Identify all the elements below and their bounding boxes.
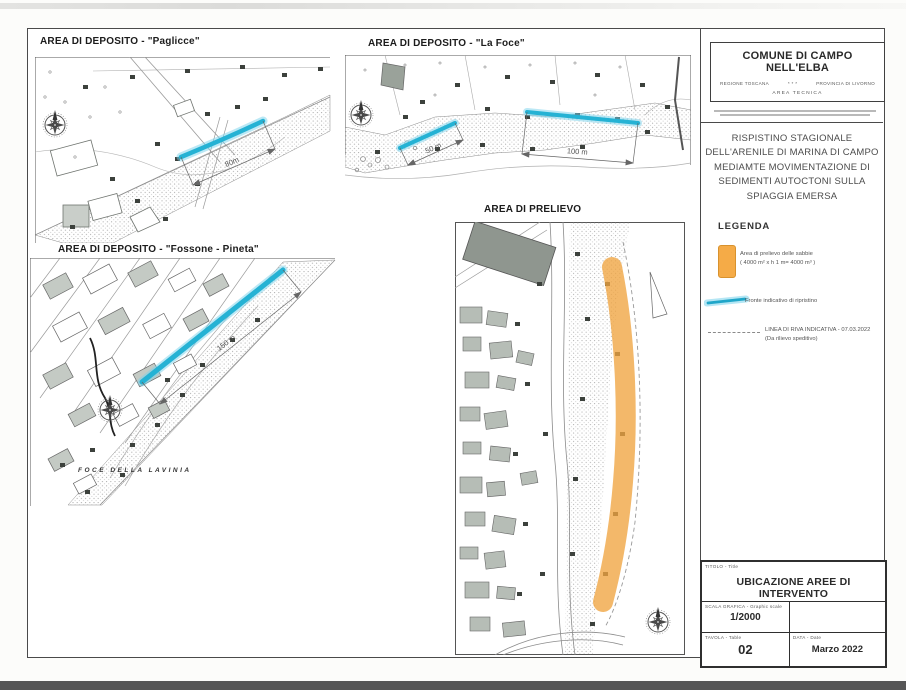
project-title-line: RISPISTINO STAGIONALE — [701, 132, 883, 146]
buildings-prelievo — [460, 307, 538, 637]
title-block-sheet-row: TAVOLA - Table 02 DATA - Date Marzo 2022 — [702, 633, 885, 666]
scanned-drawing-sheet: AREA DI DEPOSITO - "Paglicce" — [0, 0, 906, 690]
scan-artifact-top — [0, 3, 906, 9]
project-title-line: SEDIMENTI AUTOCTONI SULLA — [701, 175, 883, 189]
legend-heading: LEGENDA — [718, 221, 770, 232]
panel-title-prelievo: AREA DI PRELIEVO — [484, 204, 581, 215]
legend-extraction-line1: Area di prelievo delle sabbie — [740, 250, 815, 259]
date-value: Marzo 2022 — [793, 644, 882, 655]
stream-line — [90, 338, 115, 436]
scale-cell: SCALA GRAFICA - Graphic scale 1/2000 — [702, 602, 790, 632]
large-building — [463, 222, 556, 286]
panel-title-la-foce: AREA DI DEPOSITO - "La Foce" — [368, 38, 525, 49]
map-paglicce: 80m — [35, 57, 331, 243]
compass-rose-icon — [43, 110, 67, 137]
legend-shoreline-label: LINEA DI RIVA INDICATIVA - 07.03.2022 (D… — [765, 326, 870, 344]
extraction-area-swatch — [718, 245, 736, 278]
fine-print-line — [714, 110, 876, 112]
compass-rose-icon — [349, 100, 373, 127]
legend-shoreline-line1: LINEA DI RIVA INDICATIVA - 07.03.2022 — [765, 326, 870, 335]
region-label: REGIONE TOSCANA — [720, 81, 769, 86]
data-label: DATA - Date — [793, 635, 882, 640]
scale-label: SCALA GRAFICA - Graphic scale — [705, 604, 786, 609]
compass-rose-icon — [646, 607, 670, 634]
fine-print-disclaimer — [714, 107, 876, 119]
scale-empty-cell — [790, 602, 885, 632]
province-label: PROVINCIA DI LIVORNO — [816, 81, 875, 86]
project-title: RISPISTINO STAGIONALE DELL'ARENILE DI MA… — [701, 132, 883, 204]
project-title-line: SPIAGGIA EMERSA — [701, 190, 883, 204]
legend-extraction-line2: ( 4000 m² x h 1 m= 4000 m³ ) — [740, 259, 815, 268]
map-la-foce: 50 m 100 m — [345, 55, 691, 189]
title-block-title-row: TITOLO - Title UBICAZIONE AREE DI INTERV… — [702, 562, 885, 602]
office-label: AREA TECNICA — [711, 91, 884, 96]
legend-front-label: Fronte indicativo di ripristino — [745, 297, 817, 306]
shoreline-swatch — [708, 332, 760, 333]
dimension-label-100m: 100 m — [567, 146, 588, 156]
fine-print-line — [720, 114, 869, 116]
municipality-header-box: COMUNE DI CAMPO NELL'ELBA REGIONE TOSCAN… — [710, 42, 885, 102]
project-title-line: DELL'ARENILE DI MARINA DI CAMPO — [701, 146, 883, 160]
restore-front-swatch — [704, 294, 750, 308]
sheet-number: 02 — [705, 642, 786, 657]
title-block: TITOLO - Title UBICAZIONE AREE DI INTERV… — [700, 560, 887, 668]
title-block-scale-row: SCALA GRAFICA - Graphic scale 1/2000 — [702, 602, 885, 633]
legend-extraction-label: Area di prelievo delle sabbie ( 4000 m² … — [740, 250, 815, 268]
map-fossone: 150 m FOCE DELLA LAVINIA — [30, 258, 336, 506]
titolo-label: TITOLO - Title — [705, 564, 882, 569]
sheet-number-cell: TAVOLA - Table 02 — [702, 633, 790, 666]
project-title-line: MEDIAMTE MOVIMENTAZIONE DI — [701, 161, 883, 175]
drawing-title: UBICAZIONE AREE DI INTERVENTO — [705, 576, 882, 600]
scale-value: 1/2000 — [705, 612, 786, 623]
municipality-name: COMUNE DI CAMPO NELL'ELBA — [711, 50, 884, 74]
scan-artifact-bottom — [0, 681, 906, 690]
tavola-label: TAVOLA - Table — [705, 635, 786, 640]
date-cell: DATA - Date Marzo 2022 — [790, 633, 885, 666]
panel-title-paglicce: AREA DI DEPOSITO - "Paglicce" — [40, 36, 200, 47]
river-label: FOCE DELLA LAVINIA — [78, 467, 192, 474]
map-prelievo — [455, 222, 685, 655]
panel-title-fossone: AREA DI DEPOSITO - "Fossone - Pineta" — [58, 244, 259, 255]
legend-shoreline-line2: (Da rilievo speditivo) — [765, 335, 870, 344]
header-separator: * * * — [788, 81, 797, 86]
column-rule — [700, 122, 883, 123]
